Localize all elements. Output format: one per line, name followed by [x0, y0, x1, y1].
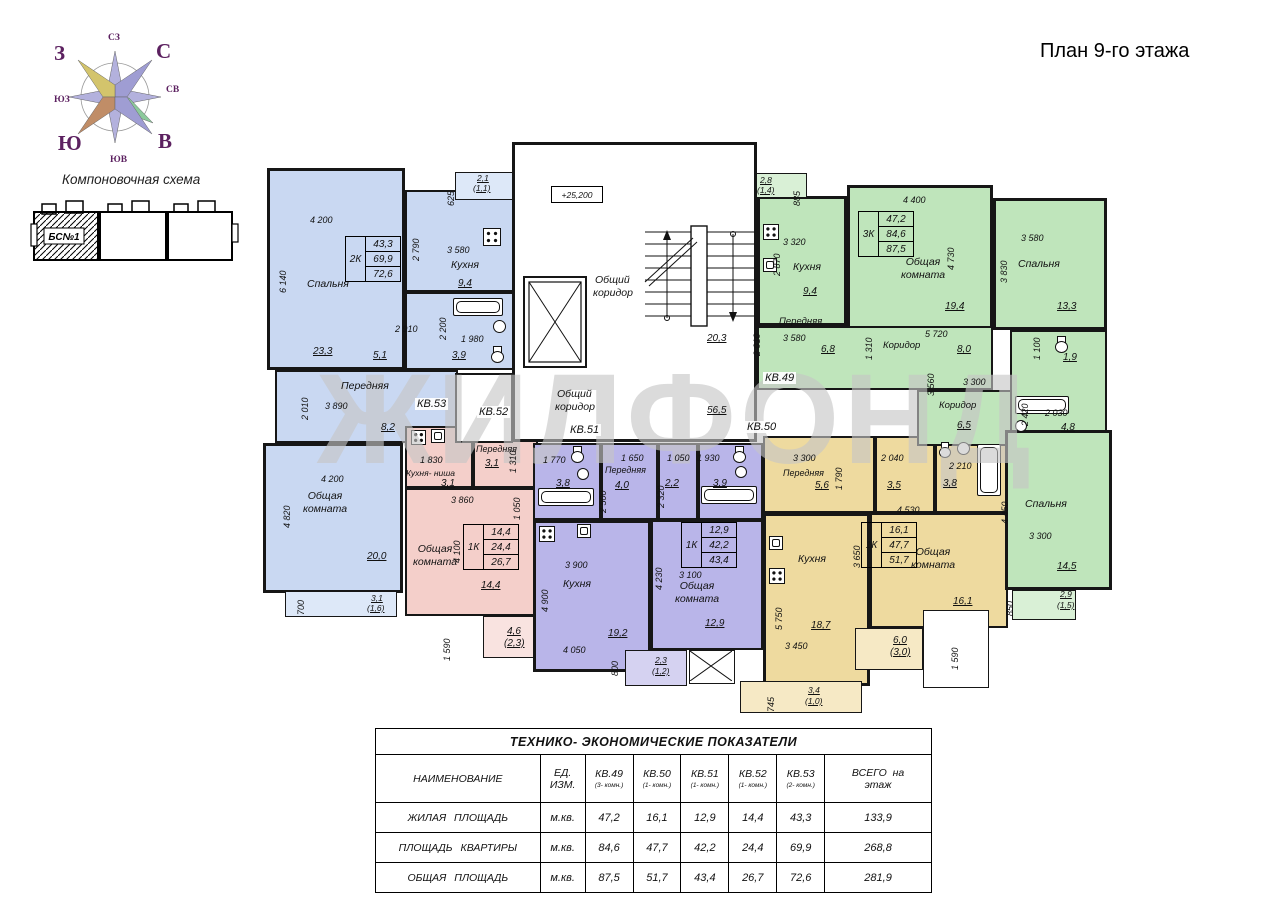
- kv50-hall-width: 3 300: [793, 454, 816, 463]
- service-shaft: [689, 650, 735, 684]
- row2-kv49: 84,6: [585, 833, 633, 863]
- kv49-bath-area: 4,8: [1061, 422, 1075, 433]
- row3-kv53: 72,6: [777, 863, 825, 893]
- compass-north-label: С: [156, 39, 171, 64]
- row1-name: ЖИЛАЯ ПЛОЩАДЬ: [376, 803, 541, 833]
- row3-unit: м.кв.: [540, 863, 585, 893]
- kv53-hall-height: 2 010: [301, 397, 310, 420]
- kv51-hall-area: 4,0: [615, 480, 629, 491]
- kv52-type: 1К: [464, 525, 484, 569]
- kv49-stove-icon: [763, 224, 779, 240]
- kv52-kitchenette-width: 1 830: [420, 456, 443, 465]
- kv51-living-name: Общая комната: [667, 580, 727, 605]
- kv52-stats: 1К 14,4 24,4 26,7: [463, 524, 519, 570]
- kv53-balcony-bottom-width: 700: [297, 600, 306, 615]
- kv51-bath2-d1050: 1 050: [667, 454, 690, 463]
- row3-kv49: 87,5: [585, 863, 633, 893]
- tech-economic-table: ТЕХНИКО- ЭКОНОМИЧЕСКИЕ ПОКАЗАТЕЛИ НАИМЕН…: [375, 728, 932, 893]
- kv49-hall-name: Передняя: [779, 316, 822, 327]
- kv49-living-name: Общая комната: [893, 256, 953, 281]
- kv53-balcony-top-area2: (1,1): [473, 184, 490, 193]
- row1-kv49: 47,2: [585, 803, 633, 833]
- layout-scheme: БС№1: [28, 190, 243, 272]
- kv51-bath1-width: 1 770: [543, 456, 566, 465]
- kv51-living-area: 12,9: [705, 618, 724, 629]
- kv51-kitchen-height: 4 900: [541, 589, 550, 612]
- kv50-kitchen-name: Кухня: [798, 553, 826, 566]
- table-row-total-area: ОБЩАЯ ПЛОЩАДЬ м.кв. 87,5 51,7 43,4 26,7 …: [376, 863, 932, 893]
- kv49-corridor2-width: 3 300: [963, 378, 986, 387]
- kv49-corridor1-height: 1 310: [865, 337, 874, 360]
- kv50-apartment-space: 47,7: [882, 538, 916, 553]
- kv49-corridor1-area: 8,0: [957, 344, 971, 355]
- kv53-balcony-bottom-area2: (1,6): [367, 604, 384, 613]
- kv50-bath-width: 2 210: [949, 462, 972, 471]
- kv51-living-height: 4 230: [655, 567, 664, 590]
- kv49-bedroom1-width: 3 580: [1021, 234, 1044, 243]
- kv49-kitchen-area: 9,4: [803, 286, 817, 297]
- kv51-kitchen-name: Кухня: [563, 578, 591, 591]
- kv50-balcony-2: [740, 681, 862, 713]
- kv52-kitchenette-area: 3,1: [441, 478, 455, 489]
- kv52-kitchenette-name: Кухня- ниша: [406, 468, 455, 478]
- kv51-type: 1К: [682, 523, 702, 567]
- kv51-stove-icon: [539, 526, 555, 542]
- core-corridor-label-2: коридор: [593, 287, 633, 300]
- kv49-bedroom2-height: 4 450: [1001, 501, 1010, 524]
- kv53-living-area: 20,0: [367, 551, 386, 562]
- table-title: ТЕХНИКО- ЭКОНОМИЧЕСКИЕ ПОКАЗАТЕЛИ: [376, 729, 932, 755]
- row3-kv52: 26,7: [729, 863, 777, 893]
- kv50-col-sub: (1- комн.): [634, 782, 681, 789]
- kv53-col-id: КВ.53: [787, 768, 815, 780]
- kv52-living-name: Общая комната: [405, 543, 465, 568]
- compass-west-label: З: [54, 41, 65, 66]
- kv49-corridor2-height: 3 560: [927, 373, 936, 396]
- kv53-bedroom-name: Спальня: [307, 278, 349, 291]
- kv50-living-width: 4 530: [897, 506, 920, 515]
- kv50-type: 1К: [862, 523, 882, 567]
- kv49-hall-area: 6,8: [821, 344, 835, 355]
- row2-kv52: 24,4: [729, 833, 777, 863]
- main-corridor-label-1: Общий: [557, 388, 592, 401]
- kv53-balcony-top-area: 2,1: [477, 174, 489, 183]
- kv51-total-space: 43,4: [702, 553, 736, 567]
- row2-kv51: 42,2: [681, 833, 729, 863]
- building-blocks-icon: БС№1: [28, 190, 243, 272]
- kv49-living-width: 4 400: [903, 196, 926, 205]
- kv50-col-id: КВ.50: [643, 768, 671, 780]
- compass-nw-label: СЗ: [108, 33, 120, 43]
- kv49-corridor1-name: Коридор: [883, 340, 920, 351]
- row2-total: 268,8: [825, 833, 932, 863]
- kv49-bedroom2-name: Спальня: [1025, 498, 1067, 511]
- kv50-balcony2-area: 3,4: [808, 686, 820, 695]
- kv53-balcony-bottom-area: 3,1: [371, 594, 383, 603]
- kv50-balcony2-width: 745: [767, 697, 776, 712]
- col-header-kv51: КВ.51 (1- комн.): [681, 755, 729, 803]
- kv53-balcony-top-width: 625: [447, 191, 456, 206]
- kv50-balcony1-area2: (3,0): [890, 647, 911, 658]
- kv53-hall-name: Передняя: [341, 380, 389, 393]
- kv53-bath-width: 1 980: [461, 335, 484, 344]
- block-bs1-label: БС№1: [48, 232, 80, 243]
- kv49-apartment-space: 84,6: [879, 227, 913, 242]
- col-header-kv52: КВ.52 (1- комн.): [729, 755, 777, 803]
- kv52-col-sub: (1- комн.): [729, 782, 776, 789]
- kv53-living-name: Общая комната: [295, 490, 355, 515]
- kv53-stats: 2К 43,3 69,9 72,6: [345, 236, 401, 282]
- total-line1: ВСЕГО на: [852, 767, 904, 779]
- page: { "title": "План 9-го этажа", "watermark…: [0, 0, 1280, 906]
- kv51-hall-height: 2 500: [599, 490, 608, 513]
- kv50-label: КВ.50: [745, 421, 778, 433]
- kv51-living-width: 3 100: [679, 571, 702, 580]
- kv50-dim-1590: 1 590: [951, 647, 960, 670]
- kv50-stove-icon: [769, 568, 785, 584]
- kv53-hall-width: 3 890: [325, 402, 348, 411]
- kv51-balcony-height: 800: [611, 661, 620, 676]
- kv53-type: 2К: [346, 237, 366, 281]
- kv53-bedroom-width: 4 200: [310, 216, 333, 225]
- row1-kv53: 43,3: [777, 803, 825, 833]
- kv49-balcony-bottom-width: 850: [1006, 601, 1015, 616]
- kv50-wc-width: 2 040: [881, 454, 904, 463]
- kv50-balcony2-area2: (1,0): [805, 697, 822, 706]
- kv53-hall-area: 8,2: [381, 422, 395, 433]
- staircase: [643, 220, 757, 336]
- kv53-col-sub: (2- комн.): [777, 782, 824, 789]
- row3-kv50: 51,7: [633, 863, 681, 893]
- kv53-bedroom-area: 23,3: [313, 346, 332, 357]
- row3-name: ОБЩАЯ ПЛОЩАДЬ: [376, 863, 541, 893]
- kv49-living-area: 19,4: [945, 301, 964, 312]
- kv51-balcony-area: 2,3: [655, 656, 667, 665]
- kv52-hall-height: 1 310: [509, 450, 518, 473]
- kv50-hall-height: 1 790: [835, 467, 844, 490]
- kv51-label: КВ.51: [568, 424, 601, 436]
- kv51-wc-height: 2 320: [657, 485, 666, 508]
- kv53-bath-area: 3,9: [452, 350, 466, 361]
- col-header-kv49: КВ.49 (3- комн.): [585, 755, 633, 803]
- kv53-sink-icon: [493, 320, 506, 333]
- compass-rose: З С Ю В СЗ СВ ЮЗ ЮВ: [30, 25, 200, 175]
- kv50-living-area: 16,1: [953, 596, 972, 607]
- kv51-kitchen-area: 19,2: [608, 628, 627, 639]
- level-mark: +25,200: [551, 186, 603, 203]
- kv49-bedroom1-area: 13,3: [1057, 301, 1076, 312]
- row1-unit: м.кв.: [540, 803, 585, 833]
- kv50-balcony-1: [855, 628, 923, 670]
- col-header-kv53: КВ.53 (2- комн.): [777, 755, 825, 803]
- kv49-label: КВ.49: [763, 372, 796, 384]
- table-row-living-area: ЖИЛАЯ ПЛОЩАДЬ м.кв. 47,2 16,1 12,9 14,4 …: [376, 803, 932, 833]
- kv52-balcony-area2: (2,3): [504, 638, 525, 649]
- page-title: План 9-го этажа: [1040, 40, 1189, 63]
- kv49-bedroom2-area: 14,5: [1057, 561, 1076, 572]
- kv49-bath-height: 2 420: [1021, 403, 1030, 426]
- kv49-balcony-bottom-area2: (1,5): [1057, 601, 1074, 610]
- unit-line2: ИЗМ.: [550, 779, 576, 791]
- kv49-bath-width: 2 030: [1045, 409, 1068, 418]
- kv51-living-space: 12,9: [702, 523, 736, 538]
- kv52-total-space: 26,7: [484, 555, 518, 569]
- compass-se-label: ЮВ: [110, 155, 127, 165]
- kv52-dim-1050: 1 050: [513, 497, 522, 520]
- main-corridor-label-2: коридор: [555, 401, 595, 414]
- kv53-living-space: 43,3: [366, 237, 400, 252]
- kv49-wc-height: 1 100: [1033, 337, 1042, 360]
- kv51-kitchen-width: 3 900: [565, 561, 588, 570]
- row2-kv50: 47,7: [633, 833, 681, 863]
- kv49-type: 3К: [859, 212, 879, 256]
- kv49-corridor2-name: Коридор: [939, 400, 976, 411]
- kv50-kitchen-area: 18,7: [811, 620, 830, 631]
- kv49-stats: 3К 47,2 84,6 87,5: [858, 211, 914, 257]
- kv53-bath-height: 2 200: [439, 317, 448, 340]
- kv53-kitchen-area: 9,4: [458, 278, 472, 289]
- kv53-corridor-area: 5,1: [373, 350, 387, 361]
- kv50-kitchen-width: 3 450: [785, 642, 808, 651]
- kv49-kitchen-height: 2 870: [773, 253, 782, 276]
- row3-kv51: 43,4: [681, 863, 729, 893]
- row3-total: 281,9: [825, 863, 932, 893]
- core-corridor-label-1: Общий: [595, 274, 630, 287]
- kv49-kitchen-width: 3 320: [783, 238, 806, 247]
- kv52-balcony-area: 4,6: [507, 626, 521, 637]
- kv49-col-id: КВ.49: [595, 768, 623, 780]
- kv53-kitchen-height: 2 790: [412, 238, 421, 261]
- kv53-bedroom-height: 6 140: [279, 270, 288, 293]
- kv49-balcony-top-width: 885: [793, 191, 802, 206]
- kv51-stats: 1К 12,9 42,2 43,4: [681, 522, 737, 568]
- kv51-bath2-width: 1 930: [697, 454, 720, 463]
- compass-ne-label: СВ: [166, 85, 179, 95]
- col-header-name: НАИМЕНОВАНИЕ: [376, 755, 541, 803]
- kv51-wc-area: 2,2: [665, 478, 679, 489]
- main-corridor-area: 56,5: [707, 405, 726, 416]
- kv51-col-sub: (1- комн.): [681, 782, 728, 789]
- kv53-stove-icon: [483, 228, 501, 246]
- kv49-bedroom1-name: Спальня: [1018, 258, 1060, 271]
- row1-kv52: 14,4: [729, 803, 777, 833]
- compass-south-label: Ю: [58, 131, 82, 156]
- kv49-total-space: 87,5: [879, 242, 913, 256]
- kv52-living-area: 14,4: [481, 580, 500, 591]
- kv53-label: КВ.53: [415, 398, 448, 410]
- kv51-bath1-area: 3,8: [556, 478, 570, 489]
- kv51-balcony-area2: (1,2): [652, 667, 669, 676]
- col-header-unit: ЕД. ИЗМ.: [540, 755, 585, 803]
- kv53-apartment-space: 69,9: [366, 252, 400, 267]
- kv53-corridor-width: 2 910: [395, 325, 418, 334]
- kv53-kitchen-name: Кухня: [451, 259, 479, 272]
- kv49-bedroom1-height: 3 830: [1000, 260, 1009, 283]
- row1-kv51: 12,9: [681, 803, 729, 833]
- kv51-hall-width: 1 650: [621, 454, 644, 463]
- kv50-wc-area: 3,5: [887, 480, 901, 491]
- kv49-corridor1-width: 5 720: [925, 330, 948, 339]
- kv53-living-height: 4 820: [283, 505, 292, 528]
- col-header-total: ВСЕГО на этаж: [825, 755, 932, 803]
- kv53-kitchen-width: 3 580: [447, 246, 470, 255]
- stairs-area: 20,3: [707, 333, 726, 344]
- unit-line1: ЕД.: [554, 767, 571, 779]
- row2-name: ПЛОЩАДЬ КВАРТИРЫ: [376, 833, 541, 863]
- row2-kv53: 69,9: [777, 833, 825, 863]
- kv52-hall-area: 3,1: [485, 458, 499, 469]
- kv52-living-width: 3 860: [451, 496, 474, 505]
- kv51-kitchen-width2: 4 050: [563, 646, 586, 655]
- row1-kv50: 16,1: [633, 803, 681, 833]
- col-header-kv50: КВ.50 (1- комн.): [633, 755, 681, 803]
- kv50-hall-area: 5,6: [815, 480, 829, 491]
- kv50-balcony1-area: 6,0: [893, 635, 907, 646]
- kv49-corridor2-area: 6,5: [957, 420, 971, 431]
- stairs-icon: [643, 220, 757, 336]
- kv49-kitchen-name: Кухня: [793, 261, 821, 274]
- floor-plan: +25,200 Общий коридор 20,3 Общий коридор…: [255, 128, 1150, 728]
- scheme-title: Компоновочная схема: [62, 172, 200, 187]
- shaft-x-icon: [690, 651, 732, 681]
- kv49-col-sub: (3- комн.): [586, 782, 633, 789]
- compass-sw-label: ЮЗ: [54, 95, 70, 105]
- kv51-apartment-space: 42,2: [702, 538, 736, 553]
- kv50-kitchen-sink-icon: [769, 536, 783, 550]
- compass-east-label: В: [158, 129, 172, 154]
- kv49-living-space: 47,2: [879, 212, 913, 227]
- kv51-bath2-area: 3,9: [713, 478, 727, 489]
- kv49-balcony-bottom-area: 2,9: [1060, 590, 1072, 599]
- kv52-balcony-height: 1 590: [443, 638, 452, 661]
- kv49-toilet-icon: [1055, 336, 1068, 353]
- kv50-hall-name: Передняя: [783, 468, 824, 479]
- kv52-label: КВ.52: [477, 406, 510, 418]
- kv49-bedroom2-width: 3 300: [1029, 532, 1052, 541]
- table-row-apartment-area: ПЛОЩАДЬ КВАРТИРЫ м.кв. 84,6 47,7 42,2 24…: [376, 833, 932, 863]
- total-line2: этаж: [865, 779, 892, 791]
- kv52-living-space: 14,4: [484, 525, 518, 540]
- kv49-balcony-top-area2: (1,4): [757, 186, 774, 195]
- kv50-living-space: 16,1: [882, 523, 916, 538]
- kv49-hall-height: 2 010: [753, 333, 762, 356]
- kv49-wc-area: 1,9: [1063, 352, 1077, 363]
- kv51-col-id: КВ.51: [691, 768, 719, 780]
- kv50-total-space: 51,7: [882, 553, 916, 567]
- kv50-bath-area: 3,8: [943, 478, 957, 489]
- row2-unit: м.кв.: [540, 833, 585, 863]
- kv52-apartment-space: 24,4: [484, 540, 518, 555]
- kv49-balcony-top-area: 2,8: [760, 176, 772, 185]
- kv53-total-space: 72,6: [366, 267, 400, 281]
- kv51-hall-name: Передняя: [605, 465, 646, 476]
- kv51-kitchen-sink-icon: [577, 524, 591, 538]
- kv49-hall-width: 3 580: [783, 334, 806, 343]
- row1-total: 133,9: [825, 803, 932, 833]
- kv50-stats: 1К 16,1 47,7 51,7: [861, 522, 917, 568]
- kv53-bathtub-icon: [453, 298, 503, 316]
- kv50-kitchen-height: 5 750: [775, 607, 784, 630]
- kv53-living-width: 4 200: [321, 475, 344, 484]
- kv52-col-id: КВ.52: [739, 768, 767, 780]
